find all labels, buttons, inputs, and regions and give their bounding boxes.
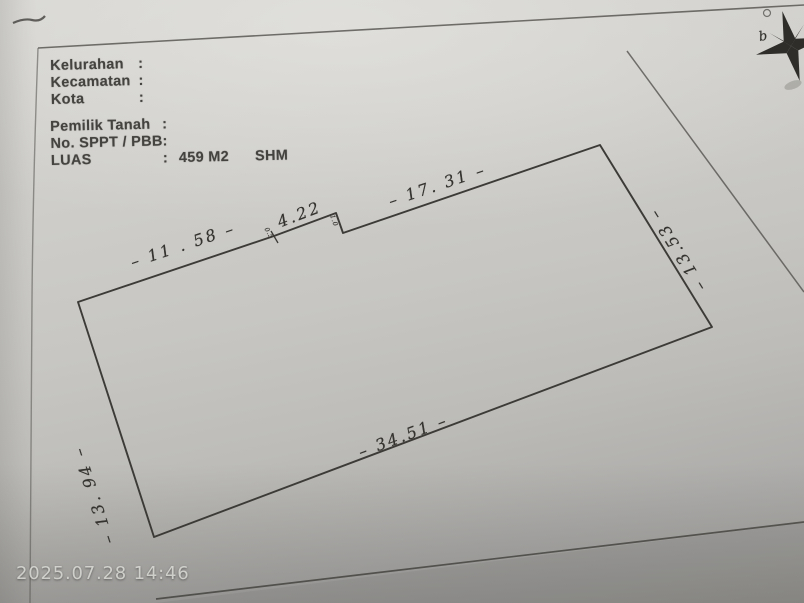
pen-scribble: [13, 16, 45, 23]
field-label: Kecamatan: [50, 73, 138, 92]
field-colon: :: [163, 151, 171, 168]
field-label: Kota: [51, 90, 139, 109]
photo-vignette: [0, 463, 804, 603]
photographed-land-document: Kelurahan : Kecamatan : Kota : Pemilik T…: [0, 0, 804, 603]
location-fields: Kelurahan : Kecamatan : Kota :: [50, 56, 155, 110]
frame-top-line: [38, 5, 804, 48]
field-colon: :: [138, 56, 146, 73]
property-fields: Pemilik Tanah : No. SPPT / PBB : LUAS : …: [50, 114, 288, 171]
area-value: 459 M2: [179, 149, 230, 167]
field-colon: :: [162, 133, 170, 150]
field-row-kota: Kota :: [51, 90, 155, 110]
field-colon: :: [139, 90, 147, 107]
road-line: [627, 51, 804, 292]
frame-line-loop: [764, 10, 771, 17]
field-colon: :: [138, 73, 146, 90]
field-label: Kelurahan: [50, 56, 138, 75]
field-colon: :: [162, 116, 170, 133]
ink-smudge: [783, 78, 803, 92]
field-label: LUAS: [51, 151, 163, 171]
compass-rose-icon: [747, 2, 804, 89]
certificate-type: SHM: [255, 148, 289, 166]
